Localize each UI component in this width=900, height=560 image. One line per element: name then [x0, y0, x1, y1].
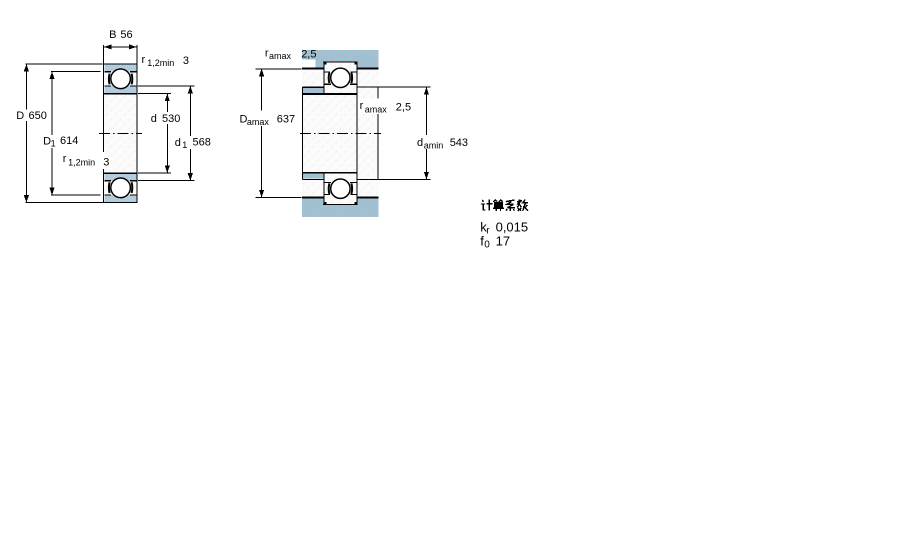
svg-text:2,5: 2,5 — [301, 49, 316, 61]
svg-text:637: 637 — [277, 113, 295, 125]
svg-text:r: r — [486, 226, 490, 237]
svg-text:1,2min: 1,2min — [68, 158, 95, 168]
svg-text:3: 3 — [103, 157, 109, 169]
svg-text:d: d — [151, 113, 157, 125]
svg-text:17: 17 — [496, 233, 510, 248]
svg-text:r: r — [142, 54, 146, 66]
svg-text:amax: amax — [365, 104, 388, 114]
svg-text:1: 1 — [182, 140, 187, 150]
svg-text:r: r — [360, 100, 364, 112]
svg-text:650: 650 — [29, 110, 47, 122]
svg-text:d: d — [175, 137, 181, 149]
svg-text:3: 3 — [183, 55, 189, 67]
svg-text:614: 614 — [60, 135, 78, 147]
svg-text:d: d — [417, 137, 423, 149]
svg-text:amax: amax — [247, 117, 270, 127]
svg-text:0,015: 0,015 — [496, 219, 529, 234]
svg-text:0: 0 — [484, 240, 490, 251]
svg-text:1: 1 — [51, 139, 56, 149]
svg-text:56: 56 — [120, 29, 132, 41]
svg-text:2,5: 2,5 — [396, 101, 411, 113]
svg-text:B: B — [109, 29, 116, 41]
svg-text:r: r — [63, 153, 67, 165]
svg-text:D: D — [16, 110, 24, 122]
svg-text:amax: amax — [269, 51, 292, 61]
svg-text:amin: amin — [424, 140, 444, 150]
svg-text:530: 530 — [162, 113, 180, 125]
svg-text:568: 568 — [193, 137, 211, 149]
svg-text:1,2min: 1,2min — [147, 58, 174, 68]
svg-text:543: 543 — [450, 137, 468, 149]
